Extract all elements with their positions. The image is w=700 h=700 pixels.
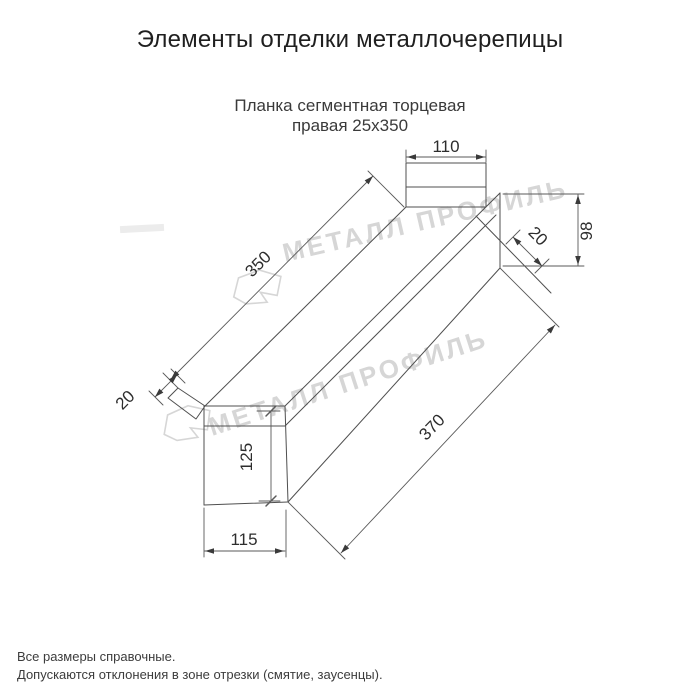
dimension-label-front-height: 125 [237,443,256,471]
dimension-label-end-height: 98 [577,222,596,241]
near-fold-tab [168,388,205,419]
technical-drawing: МЕТАЛЛ ПРОФИЛЬ МЕТАЛЛ ПРОФИЛЬ [0,0,700,700]
footer-notes: Все размеры справочные. Допускаются откл… [17,648,383,684]
document-page: Элементы отделки металлочерепицы Планка … [0,0,700,700]
dimension-label-top-tab-width: 110 [432,137,459,156]
front-near-right-edge [285,406,288,502]
dimension-label-end-fold: 20 [524,223,551,250]
dimension-label-near-fold: 20 [112,387,139,414]
dimension-label-front-width: 115 [230,530,257,549]
footer-note-1: Все размеры справочные. [17,648,383,666]
front-near-bottom-edge [204,502,288,505]
footer-note-2: Допускаются отклонения в зоне отрезки (с… [17,666,383,684]
watermark-group: МЕТАЛЛ ПРОФИЛЬ МЕТАЛЛ ПРОФИЛЬ [120,173,571,445]
dimension-label-top-face-length: 350 [241,247,274,280]
dimension-label-bottom-length: 370 [415,410,448,444]
scan-artifact [120,224,164,233]
